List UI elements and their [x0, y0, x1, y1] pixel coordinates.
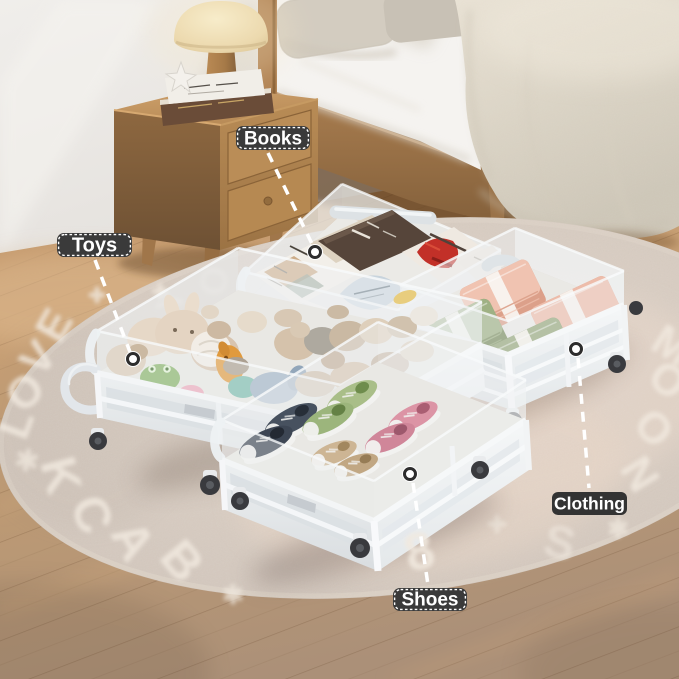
svg-text:Toys: Toys	[72, 235, 117, 257]
svg-text:Books: Books	[244, 129, 302, 150]
svg-text:Shoes: Shoes	[401, 590, 458, 611]
svg-text:Clothing: Clothing	[554, 494, 625, 514]
